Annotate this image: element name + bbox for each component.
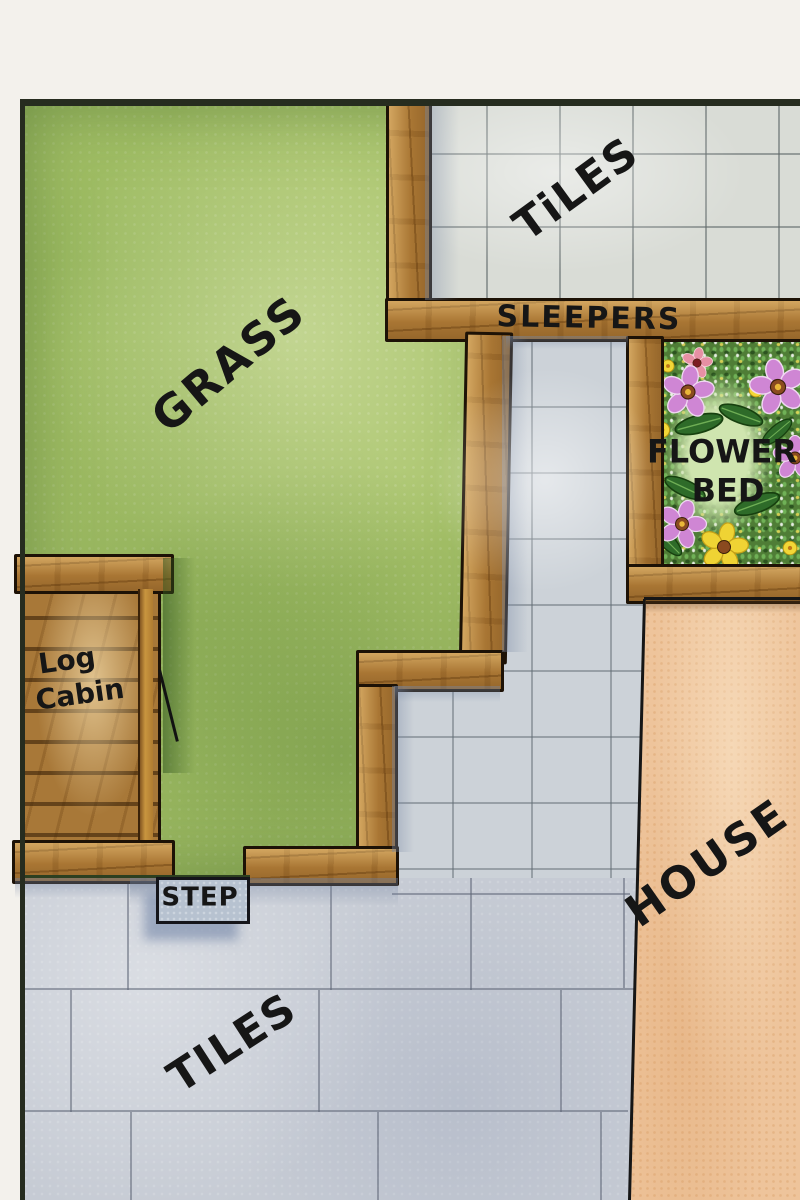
tile-joint <box>70 990 72 1112</box>
flower-bed-label-line1: FLOWER <box>647 436 797 469</box>
flower-purple <box>658 362 719 423</box>
tile-joint <box>600 1112 602 1200</box>
sleeper-bottom-horizontal <box>243 846 399 886</box>
tile-joint <box>127 878 129 990</box>
flower-bed-label-line2: BED <box>692 475 765 508</box>
sleepers-label: SLEEPERS <box>496 302 681 336</box>
house-top-edge <box>644 597 800 600</box>
tile-joint <box>470 878 472 990</box>
tile-joint <box>130 1112 132 1200</box>
tile-joint <box>560 990 562 1112</box>
log-cabin-label-line1: Log <box>37 643 98 679</box>
log-cabin-top-beam <box>14 554 174 594</box>
flower-yellow-dot <box>781 539 799 557</box>
sleeper-vertical-low <box>356 684 398 858</box>
garden-plan-canvas: GRASS TiLES SLEEPERS FLOWER BED Log Cabi… <box>0 0 800 1200</box>
tile-joint <box>377 1112 379 1200</box>
sleeper-vertical-top <box>386 100 432 309</box>
tile-joint <box>22 1110 628 1112</box>
tile-joint <box>22 988 634 990</box>
tile-joint <box>330 878 332 990</box>
bottom-tiles-area <box>22 878 645 1200</box>
sleeper-vertical-mid <box>459 332 513 665</box>
log-cabin-right-plank <box>138 589 153 840</box>
tile-joint <box>318 990 320 1112</box>
step-label: STEP <box>161 885 238 912</box>
tile-joint <box>392 893 630 895</box>
